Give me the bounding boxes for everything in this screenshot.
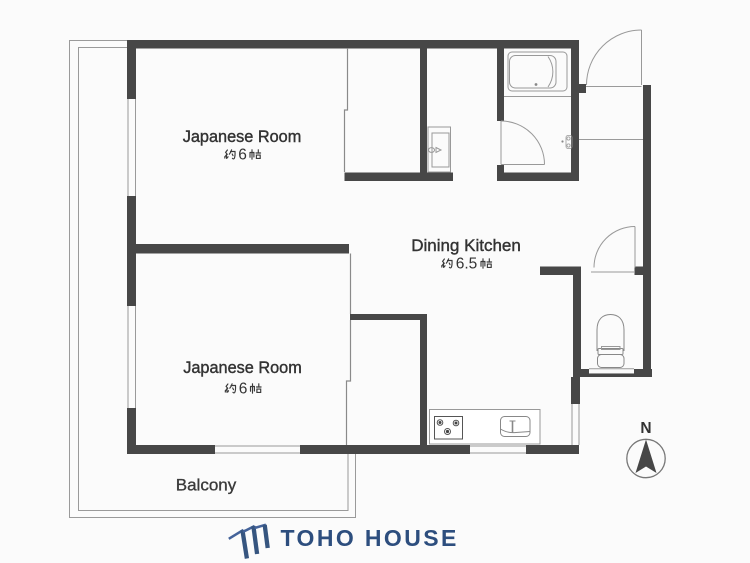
svg-text:Balcony: Balcony	[176, 476, 237, 495]
svg-text:Japanese Room: Japanese Room	[183, 128, 302, 146]
svg-text:6: 6	[238, 146, 247, 163]
svg-text:Japanese Room: Japanese Room	[183, 359, 302, 377]
svg-text:6.5: 6.5	[456, 255, 478, 272]
svg-text:Dining Kitchen: Dining Kitchen	[411, 236, 521, 255]
svg-text:N: N	[640, 420, 651, 437]
svg-text:6: 6	[239, 380, 248, 397]
svg-text:TOHO HOUSE: TOHO HOUSE	[281, 525, 459, 551]
